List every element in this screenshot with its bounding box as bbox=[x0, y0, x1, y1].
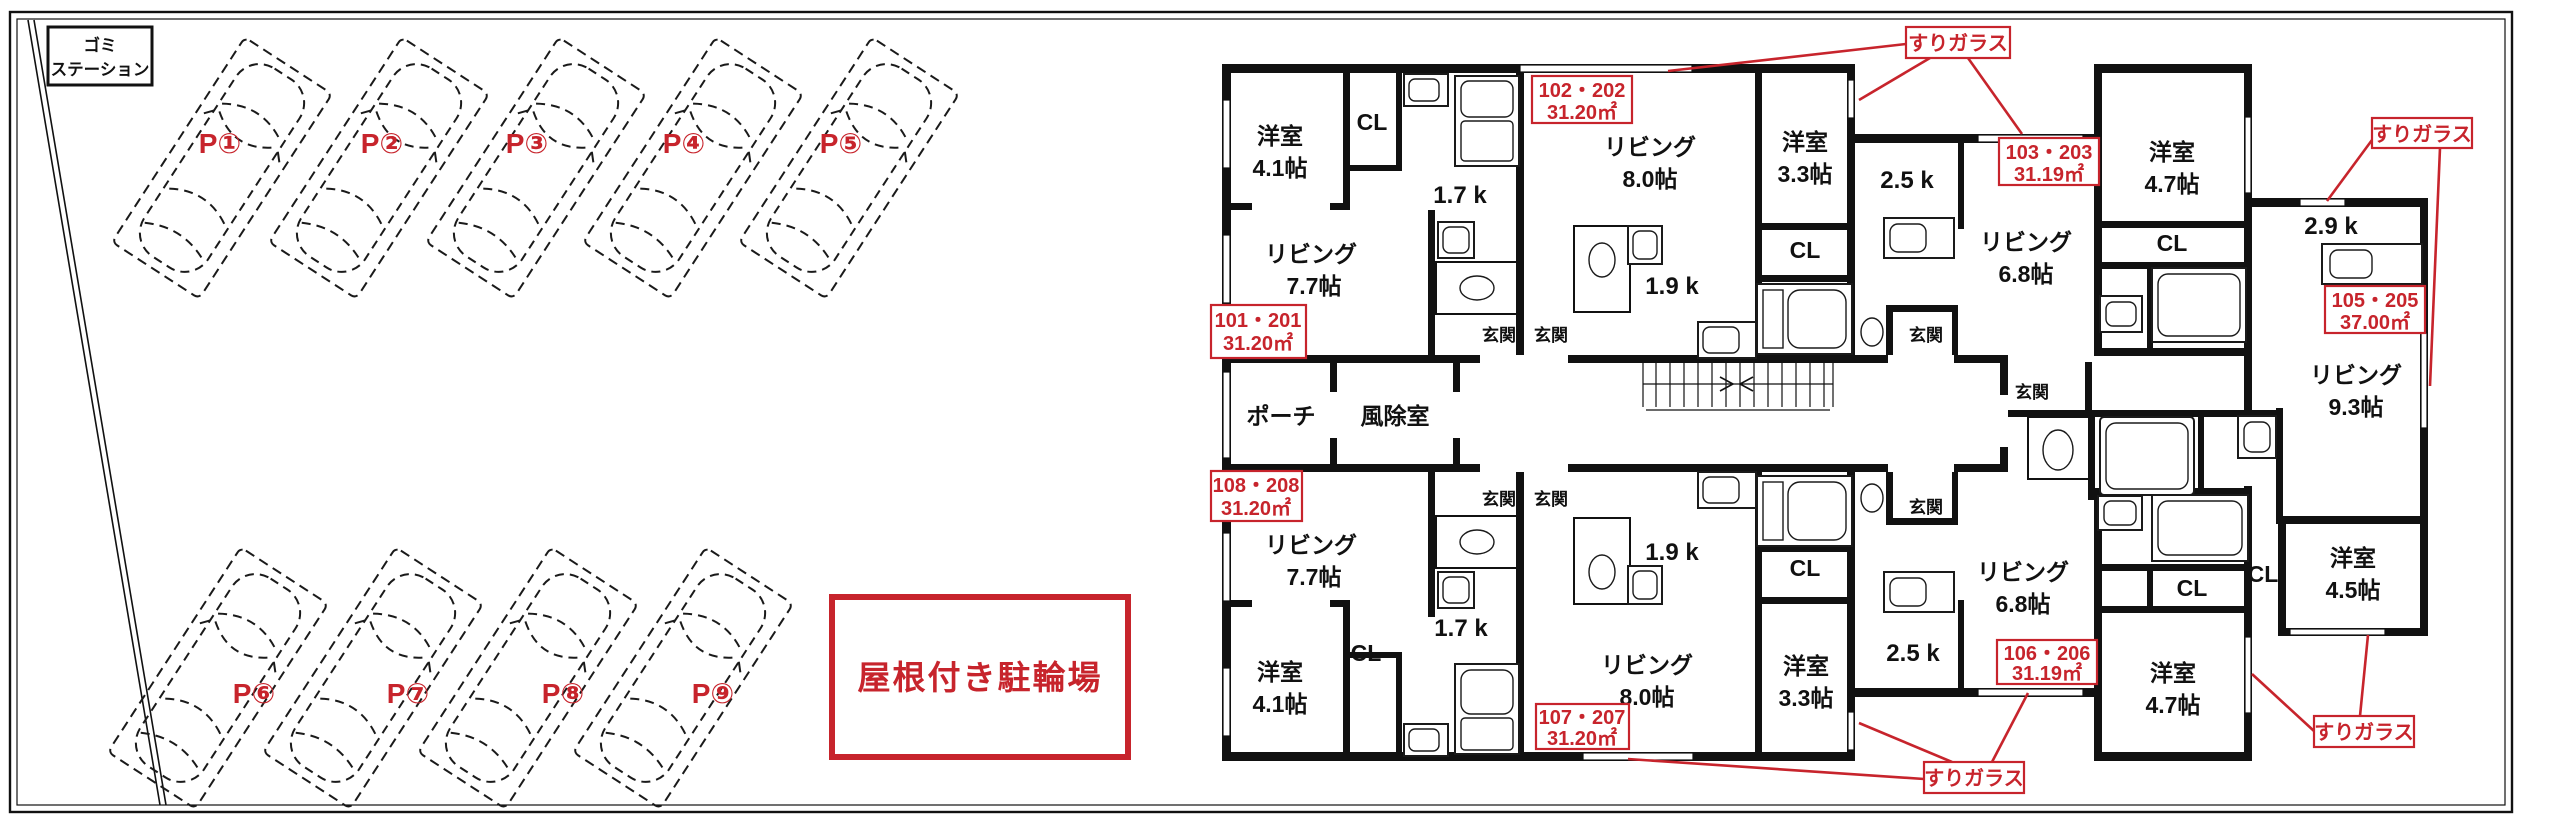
room-yo41-bottom-name: 洋室 bbox=[1257, 659, 1303, 685]
room-li68-bottom-name: リビング bbox=[1977, 559, 2069, 585]
room-li77-bottom-name: リビング bbox=[1265, 532, 1357, 558]
svg-text:31.20㎡: 31.20㎡ bbox=[1223, 331, 1293, 355]
parking-spot-label-p4: P④ bbox=[663, 128, 705, 159]
car-icon bbox=[739, 37, 959, 298]
room-yo45-size: 4.5帖 bbox=[2326, 577, 2381, 603]
parking-spot-label-p5: P⑤ bbox=[820, 128, 862, 159]
closet-label: CL bbox=[2177, 575, 2208, 601]
room-yo33-top-name: 洋室 bbox=[1782, 129, 1828, 155]
toilet-icon bbox=[1861, 318, 1883, 346]
room-li80-top-size: 8.0帖 bbox=[1623, 166, 1678, 192]
svg-text:すりガラス: すりガラス bbox=[2314, 721, 2414, 744]
unit-label-103-203: 103・203 31.19㎡ bbox=[1999, 138, 2099, 186]
room-li80-bottom-name: リビング bbox=[1601, 652, 1693, 678]
unit-label-101-201: 101・201 31.20㎡ bbox=[1211, 305, 1306, 358]
closet-label: CL bbox=[1351, 640, 1382, 666]
unit-label-106-206: 106・206 31.19㎡ bbox=[1997, 640, 2097, 685]
svg-text:105・205: 105・205 bbox=[2332, 290, 2419, 312]
svg-text:すりガラス: すりガラス bbox=[1908, 32, 2008, 55]
car-icon bbox=[573, 547, 793, 808]
car-icon bbox=[108, 547, 328, 808]
frosted-glass-label-top-right: すりガラス bbox=[2372, 118, 2472, 148]
car-icon bbox=[269, 37, 489, 298]
car-icon bbox=[263, 547, 483, 808]
room-yo41-top-name: 洋室 bbox=[1257, 123, 1303, 149]
bicycle-parking-label: 屋根付き駐輪場 bbox=[858, 659, 1103, 696]
room-yo41-bottom-size: 4.1帖 bbox=[1253, 691, 1308, 717]
svg-text:すりガラス: すりガラス bbox=[1924, 767, 2024, 790]
svg-text:31.20㎡: 31.20㎡ bbox=[1547, 726, 1617, 750]
kitchen-25-bottom-label: 2.5 k bbox=[1886, 640, 1940, 667]
garbage-station-label-line2: ステーション bbox=[51, 61, 150, 79]
parking-spot-label-p9: P⑨ bbox=[692, 678, 734, 709]
entrance-label-101: 玄関 bbox=[1482, 325, 1516, 345]
unit-label-107-207: 107・207 31.20㎡ bbox=[1536, 704, 1629, 750]
room-li68-top-size: 6.8帖 bbox=[1999, 261, 2054, 287]
room-li93-size: 9.3帖 bbox=[2329, 394, 2384, 420]
room-li68-top-name: リビング bbox=[1980, 229, 2072, 255]
porch-label: ポーチ bbox=[1247, 403, 1316, 429]
site-boundary-line bbox=[28, 20, 166, 805]
entrance-label-102: 玄関 bbox=[1534, 325, 1568, 345]
room-yo47-bottom-size: 4.7帖 bbox=[2146, 692, 2201, 718]
svg-text:103・203: 103・203 bbox=[2006, 142, 2093, 164]
bicycle-parking-sign: 屋根付き駐輪場 bbox=[832, 597, 1128, 757]
kitchen-19-top-label: 1.9 k bbox=[1645, 273, 1699, 300]
room-yo45-name: 洋室 bbox=[2330, 545, 2376, 571]
room-li93-name: リビング bbox=[2310, 362, 2402, 388]
svg-text:106・206: 106・206 bbox=[2004, 643, 2091, 665]
unit-label-102-202: 102・202 31.20㎡ bbox=[1532, 76, 1632, 124]
car-icon bbox=[583, 37, 803, 298]
kitchen-17-top-label: 1.7 k bbox=[1433, 182, 1487, 209]
entrance-label-108: 玄関 bbox=[1482, 489, 1516, 509]
garbage-station-label-line1: ゴミ bbox=[84, 35, 117, 55]
room-li77-bottom-size: 7.7帖 bbox=[1287, 564, 1342, 590]
closet-label: CL bbox=[1357, 109, 1388, 135]
svg-text:108・208: 108・208 bbox=[1213, 475, 1300, 497]
closet-label: CL bbox=[2157, 230, 2188, 256]
svg-text:37.00㎡: 37.00㎡ bbox=[2340, 310, 2410, 334]
parking-spot-label-p2: P② bbox=[361, 128, 403, 159]
toilet-icon bbox=[1460, 530, 1494, 554]
kitchen-19-bottom-label: 1.9 k bbox=[1645, 539, 1699, 566]
unit-label-105-205: 105・205 37.00㎡ bbox=[2325, 286, 2425, 334]
room-yo47-top-size: 4.7帖 bbox=[2145, 171, 2200, 197]
closet-label: CL bbox=[1790, 555, 1821, 581]
room-li68-bottom-size: 6.8帖 bbox=[1996, 591, 2051, 617]
frosted-glass-label-bottom-right: すりガラス bbox=[2314, 716, 2414, 747]
room-yo47-top-name: 洋室 bbox=[2149, 139, 2195, 165]
site-plan-page: ゴミ ステーション P① P② P③ P④ P⑤ P⑥ P⑦ P⑧ P⑨ 屋根付… bbox=[0, 0, 2565, 833]
frosted-glass-label-top: すりガラス bbox=[1906, 27, 2010, 58]
svg-text:31.20㎡: 31.20㎡ bbox=[1221, 496, 1291, 520]
toilet-icon bbox=[2043, 430, 2073, 470]
garbage-station-sign: ゴミ ステーション bbox=[48, 27, 152, 85]
kitchen-17-bottom-label: 1.7 k bbox=[1434, 615, 1488, 642]
room-yo33-bottom-name: 洋室 bbox=[1783, 653, 1829, 679]
windbreak-room-label: 風除室 bbox=[1361, 403, 1430, 429]
entrance-label-103: 玄関 bbox=[1909, 325, 1943, 345]
closet-label: CL bbox=[1790, 237, 1821, 263]
frosted-glass-label-bottom: すりガラス bbox=[1924, 762, 2024, 793]
svg-text:107・207: 107・207 bbox=[1539, 707, 1626, 729]
car-icon bbox=[418, 547, 638, 808]
svg-text:102・202: 102・202 bbox=[1539, 80, 1626, 102]
closet-label: CL bbox=[2248, 561, 2279, 587]
svg-text:31.19㎡: 31.19㎡ bbox=[2012, 661, 2082, 685]
toilet-icon bbox=[1460, 276, 1494, 300]
room-li80-top-name: リビング bbox=[1604, 134, 1696, 160]
unit-label-108-208: 108・208 31.20㎡ bbox=[1211, 471, 1302, 521]
toilet-icon bbox=[1589, 243, 1615, 277]
parking-spot-label-p3: P③ bbox=[506, 128, 548, 159]
toilet-icon bbox=[1861, 484, 1883, 512]
room-li77-top-size: 7.7帖 bbox=[1287, 273, 1342, 299]
svg-text:31.19㎡: 31.19㎡ bbox=[2014, 162, 2084, 186]
site-and-floor-plan-drawing: ゴミ ステーション P① P② P③ P④ P⑤ P⑥ P⑦ P⑧ P⑨ 屋根付… bbox=[0, 0, 2565, 833]
room-yo47-bottom-name: 洋室 bbox=[2150, 660, 2196, 686]
svg-text:31.20㎡: 31.20㎡ bbox=[1547, 100, 1617, 124]
parking-spot-label-p7: P⑦ bbox=[387, 678, 429, 709]
staircase bbox=[1643, 362, 1833, 410]
entrance-label-105: 玄関 bbox=[2015, 382, 2049, 402]
svg-text:101・201: 101・201 bbox=[1215, 310, 1302, 332]
kitchen-29-label: 2.9 k bbox=[2304, 213, 2358, 240]
entrance-label-107: 玄関 bbox=[1534, 489, 1568, 509]
parking-spot-label-p8: P⑧ bbox=[542, 678, 584, 709]
room-yo33-top-size: 3.3帖 bbox=[1778, 161, 1833, 187]
car-icon bbox=[426, 37, 646, 298]
room-yo33-bottom-size: 3.3帖 bbox=[1779, 685, 1834, 711]
room-li77-top-name: リビング bbox=[1265, 241, 1357, 267]
entrance-label-106: 玄関 bbox=[1909, 497, 1943, 517]
parking-spot-label-p1: P① bbox=[199, 128, 241, 159]
kitchen-25-top-label: 2.5 k bbox=[1880, 167, 1934, 194]
toilet-icon bbox=[1589, 555, 1615, 589]
svg-text:すりガラス: すりガラス bbox=[2372, 123, 2472, 146]
parking-spot-label-p6: P⑥ bbox=[233, 678, 275, 709]
room-yo41-top-size: 4.1帖 bbox=[1253, 155, 1308, 181]
